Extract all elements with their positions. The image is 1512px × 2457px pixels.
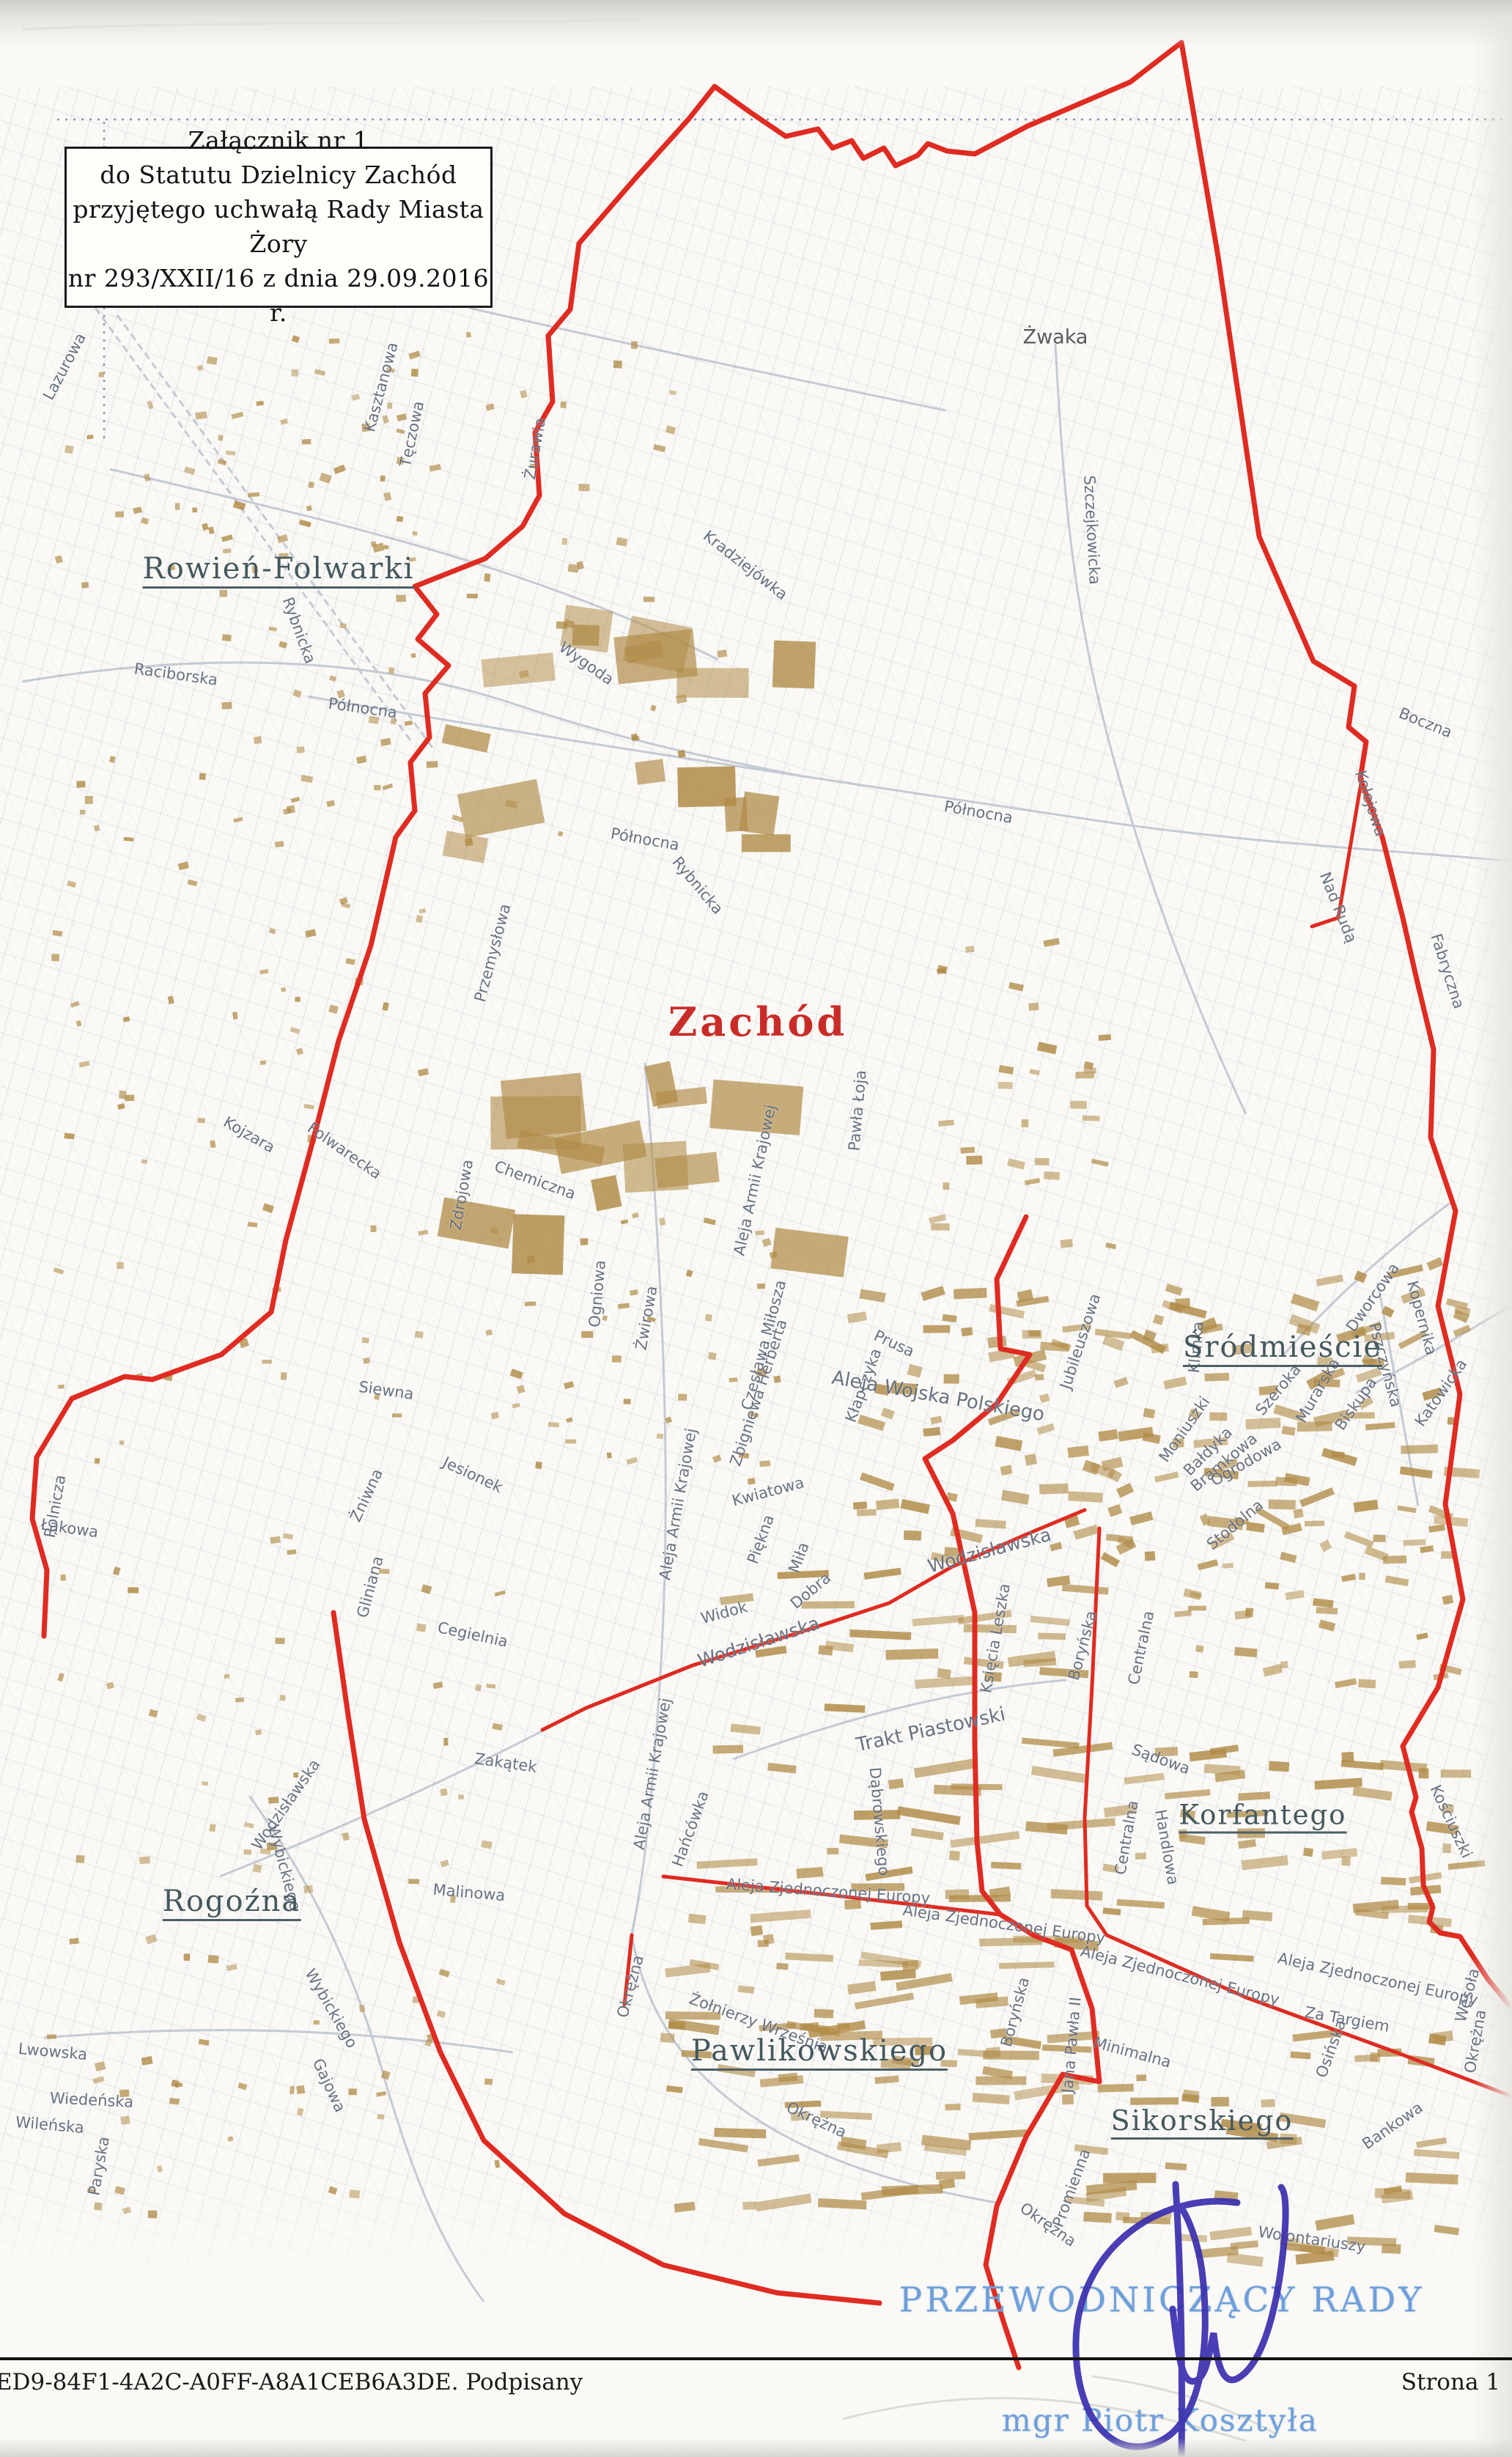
scan-edge-bottom xyxy=(0,2438,1512,2457)
footer-document-id: ED9-84F1-4A2C-A0FF-A8A1CEB6A3DE. Podpisa… xyxy=(0,2369,583,2395)
scan-edge-top xyxy=(0,0,1512,47)
pen-signature xyxy=(0,0,1512,2457)
scanned-document-page: Załącznik nr 1 do Statutu Dzielnicy Zach… xyxy=(0,0,1512,2457)
footer-page-number: Strona 1 xyxy=(1401,2369,1500,2395)
footer-rule xyxy=(0,2357,1512,2360)
